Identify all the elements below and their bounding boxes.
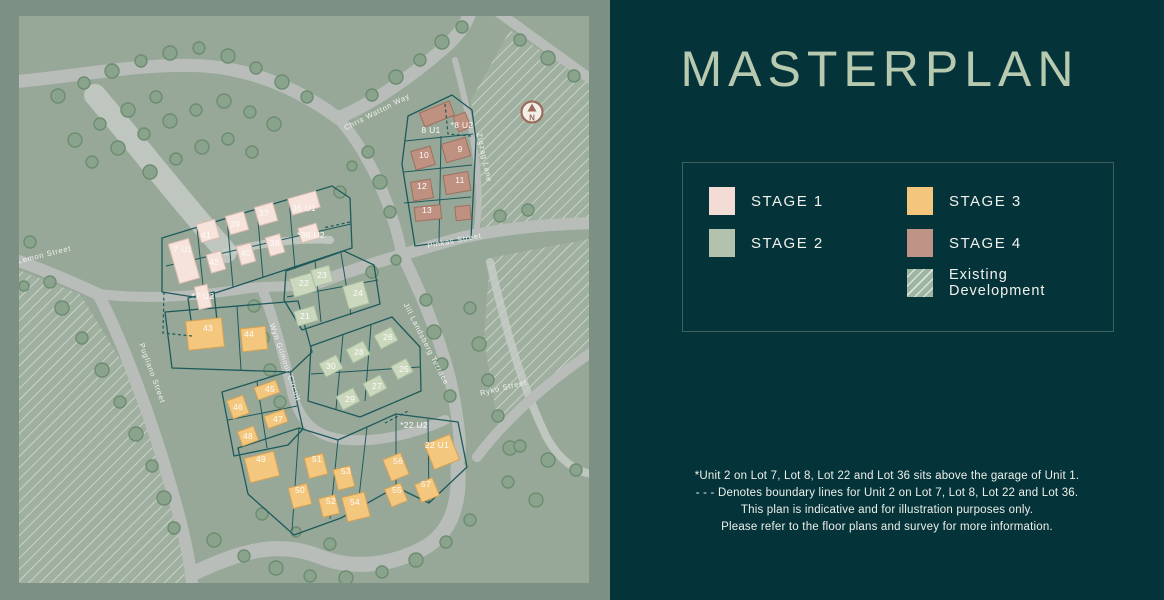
info-panel: MASTERPLAN STAGE 1 STAGE 2 STAGE 3 STAGE…	[610, 0, 1164, 600]
lot-label-23: 23	[317, 270, 327, 280]
compass-north-label: N	[529, 114, 535, 123]
existing-development-swatch	[907, 269, 933, 297]
stage-3-swatch	[907, 187, 933, 215]
lot-label-45: 45	[265, 384, 275, 394]
compass-icon: N	[522, 102, 543, 123]
lot-label-39: 39	[230, 219, 240, 229]
lot-label-48: 48	[243, 431, 253, 441]
footnotes: *Unit 2 on Lot 7, Lot 8, Lot 22 and Lot …	[640, 468, 1134, 536]
lot-label-52: 52	[326, 496, 336, 506]
lot-label-57: 57	[421, 479, 431, 489]
legend-item-stage-1: STAGE 1	[709, 187, 824, 215]
lot-label-12: 12	[417, 181, 427, 191]
lot-label-9: 9	[457, 144, 462, 154]
lot-label-54: 54	[350, 497, 360, 507]
lot-label-8-u2: *8 U2	[451, 120, 474, 130]
lot-label-21: 21	[300, 311, 310, 321]
footnote-line: This plan is indicative and for illustra…	[640, 502, 1134, 519]
legend-label: STAGE 3	[949, 193, 1022, 210]
lot-label-46: 46	[233, 402, 243, 412]
lot-label-38: 38	[270, 238, 280, 248]
stage-2-swatch	[709, 229, 735, 257]
lot-label-40: 40	[241, 248, 251, 258]
lot-label-55: 55	[392, 485, 402, 495]
lot-label-50: 50	[295, 485, 305, 495]
lot-label-42: 42	[209, 257, 219, 267]
footnote-line: - - - Denotes boundary lines for Unit 2 …	[640, 485, 1134, 502]
lot-label-26: 26	[383, 332, 393, 342]
lot-label-22-u2: *22 U2	[400, 420, 428, 430]
lot-label-44: 44	[244, 329, 254, 339]
lot-label-36-u1: 36 U1	[292, 203, 316, 213]
legend-label: STAGE 4	[949, 235, 1022, 252]
lot-label-11: 11	[455, 175, 464, 185]
lot-label-47: 47	[273, 414, 283, 424]
lot-label-36-u2: *36 U2	[297, 230, 325, 240]
lot-label-30: 30	[326, 361, 336, 371]
lot-label-28: 28	[354, 347, 364, 357]
legend-item-stage-3: STAGE 3	[907, 187, 1022, 215]
legend-label: STAGE 2	[751, 235, 824, 252]
legend-label: STAGE 1	[751, 193, 824, 210]
lot-label-10: 10	[419, 150, 429, 160]
legend-item-stage-4: STAGE 4	[907, 229, 1022, 257]
lot-label-37: 37	[259, 208, 269, 218]
lot-label-22: 22	[299, 278, 309, 288]
legend: STAGE 1 STAGE 2 STAGE 3 STAGE 4 Existing…	[682, 162, 1114, 332]
legend-item-stage-2: STAGE 2	[709, 229, 824, 257]
lot-label-13: 13	[422, 205, 432, 215]
stage-1-swatch	[709, 187, 735, 215]
lot-label-8-u1: 8 U1	[421, 125, 440, 135]
page-title: MASTERPLAN	[610, 40, 1150, 98]
lot-label-24: 24	[353, 288, 363, 298]
lot-label-56: 56	[393, 456, 403, 466]
lot-label-27: 27	[372, 381, 382, 391]
lot-label-49: 49	[256, 454, 266, 464]
legend-item-existing-development: Existing Development	[907, 267, 1079, 299]
footnote-line: *Unit 2 on Lot 7, Lot 8, Lot 22 and Lot …	[640, 468, 1134, 485]
lot-label-22-u1: 22 U1	[425, 440, 449, 450]
lot-label-41: 41	[201, 230, 211, 240]
site-map: 8 U1 *8 U2 10 9 12 11 13 7 U1 41 42 39 4…	[19, 16, 589, 583]
lot-label-51: 51	[312, 454, 322, 464]
lot-label-29: 29	[345, 394, 355, 404]
lot-label-43: 43	[203, 323, 213, 333]
map-panel: 8 U1 *8 U2 10 9 12 11 13 7 U1 41 42 39 4…	[0, 0, 610, 600]
footnote-line: Please refer to the floor plans and surv…	[640, 519, 1134, 536]
lot-label-7-u1: 7 U1	[173, 244, 192, 254]
lot-label-53: 53	[341, 466, 351, 476]
lot-label-7-u2: *7 U2	[192, 291, 215, 301]
lot-label-25: 25	[399, 364, 409, 374]
stage-4-swatch	[907, 229, 933, 257]
legend-label: Existing Development	[949, 267, 1079, 299]
